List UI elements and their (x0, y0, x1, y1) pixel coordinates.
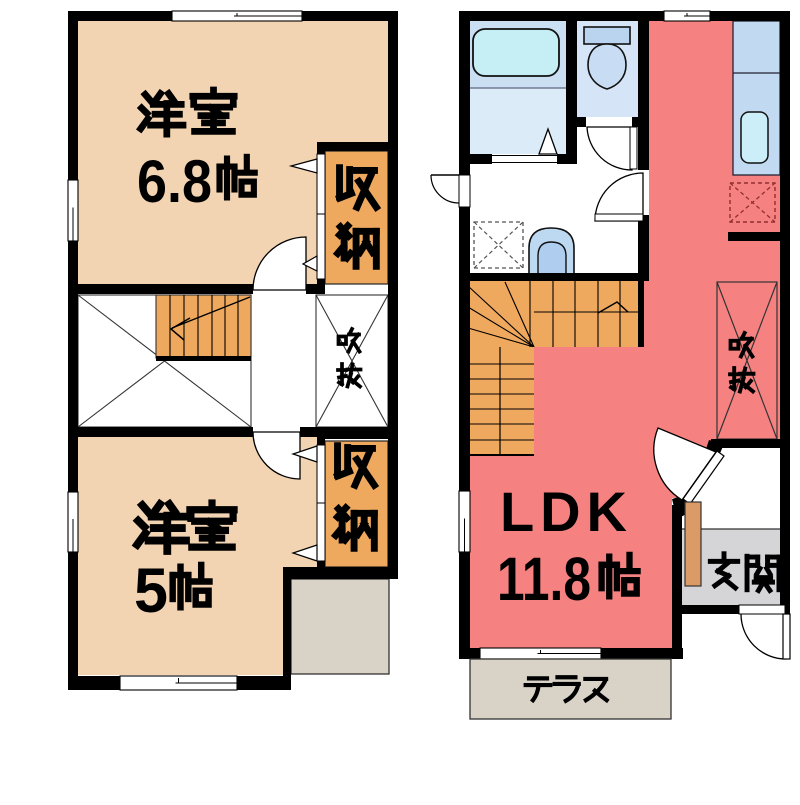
svg-text:11.8: 11.8 (497, 545, 591, 613)
svg-text:LDK: LDK (500, 480, 627, 543)
svg-text:6.8: 6.8 (137, 148, 212, 215)
svg-text:5: 5 (134, 556, 168, 626)
